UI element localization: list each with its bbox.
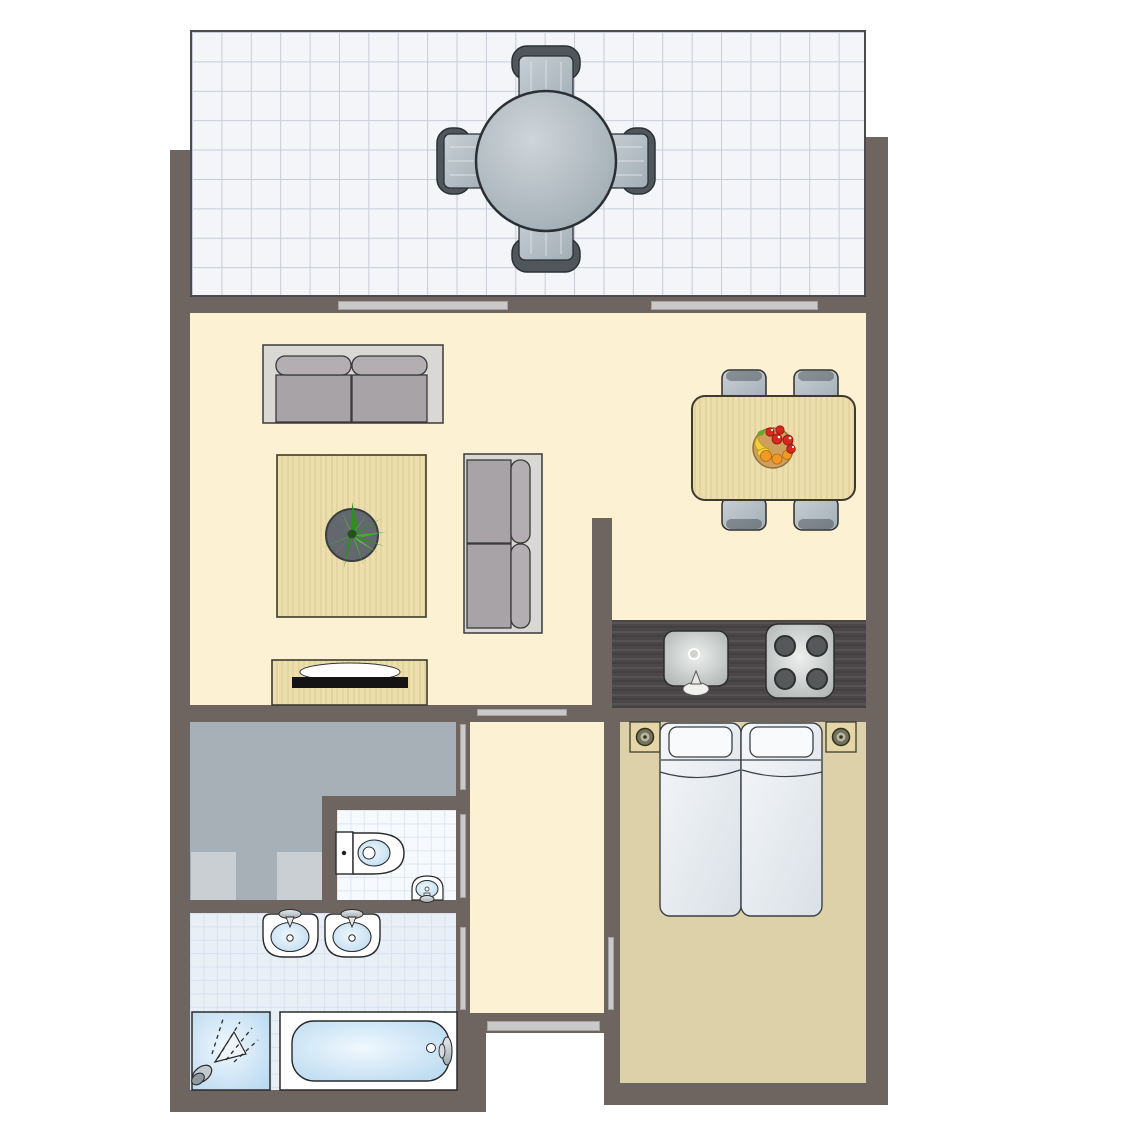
patio-table bbox=[476, 91, 616, 231]
bathtub bbox=[280, 1012, 457, 1090]
pillow-left bbox=[669, 727, 732, 757]
wash-basin-right bbox=[325, 910, 380, 958]
burner bbox=[807, 636, 827, 656]
kitchen-counter bbox=[612, 620, 866, 708]
sofa-horizontal bbox=[263, 345, 443, 423]
tv-bar bbox=[292, 677, 408, 688]
burner bbox=[775, 669, 795, 689]
nightstand-left bbox=[630, 722, 660, 752]
corner-hand-basin bbox=[412, 876, 443, 903]
burner bbox=[775, 636, 795, 656]
pillow-right bbox=[750, 727, 813, 757]
bathtub-drain bbox=[427, 1044, 436, 1053]
burner bbox=[807, 669, 827, 689]
toilet bbox=[336, 832, 404, 874]
tv-console bbox=[272, 660, 427, 705]
shower bbox=[189, 1012, 270, 1090]
twin-beds bbox=[660, 723, 822, 916]
floor-plan bbox=[0, 0, 1145, 1145]
furniture-layer bbox=[0, 0, 1145, 1145]
wash-basin-left bbox=[263, 910, 318, 958]
sofa-vertical bbox=[464, 454, 542, 633]
kitchen-sink bbox=[664, 631, 728, 696]
nightstand-right bbox=[826, 722, 856, 752]
stove bbox=[766, 624, 834, 698]
